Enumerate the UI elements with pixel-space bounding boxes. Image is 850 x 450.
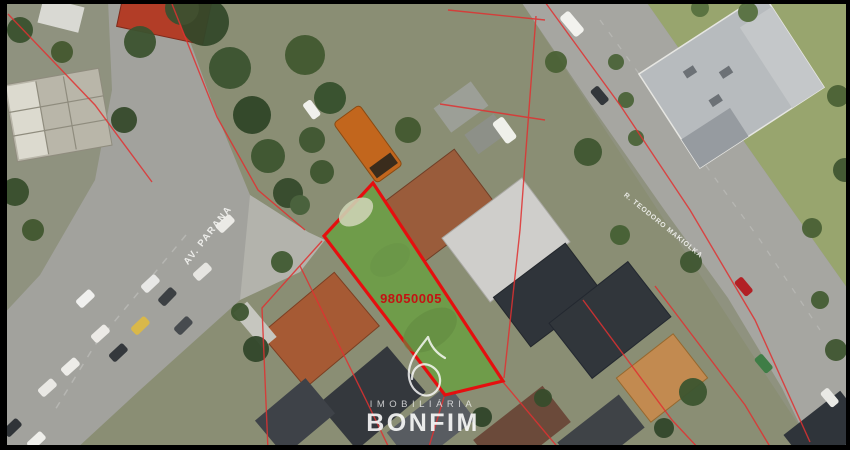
- brand-name-main: BONFIM: [366, 409, 480, 437]
- construction-building: [4, 68, 112, 161]
- letterbox-bar-top: [0, 0, 850, 4]
- parcel-code-label: 98050005: [380, 291, 442, 306]
- aerial-map-view: 98050005 AV. PARANA R. TEODORO MAKIOLKA …: [0, 0, 850, 450]
- letterbox-bar-right: [846, 0, 850, 450]
- letterbox-bar-left: [0, 0, 7, 450]
- satellite-imagery: 98050005 AV. PARANA R. TEODORO MAKIOLKA …: [0, 0, 850, 450]
- letterbox-bar-bottom: [0, 445, 850, 450]
